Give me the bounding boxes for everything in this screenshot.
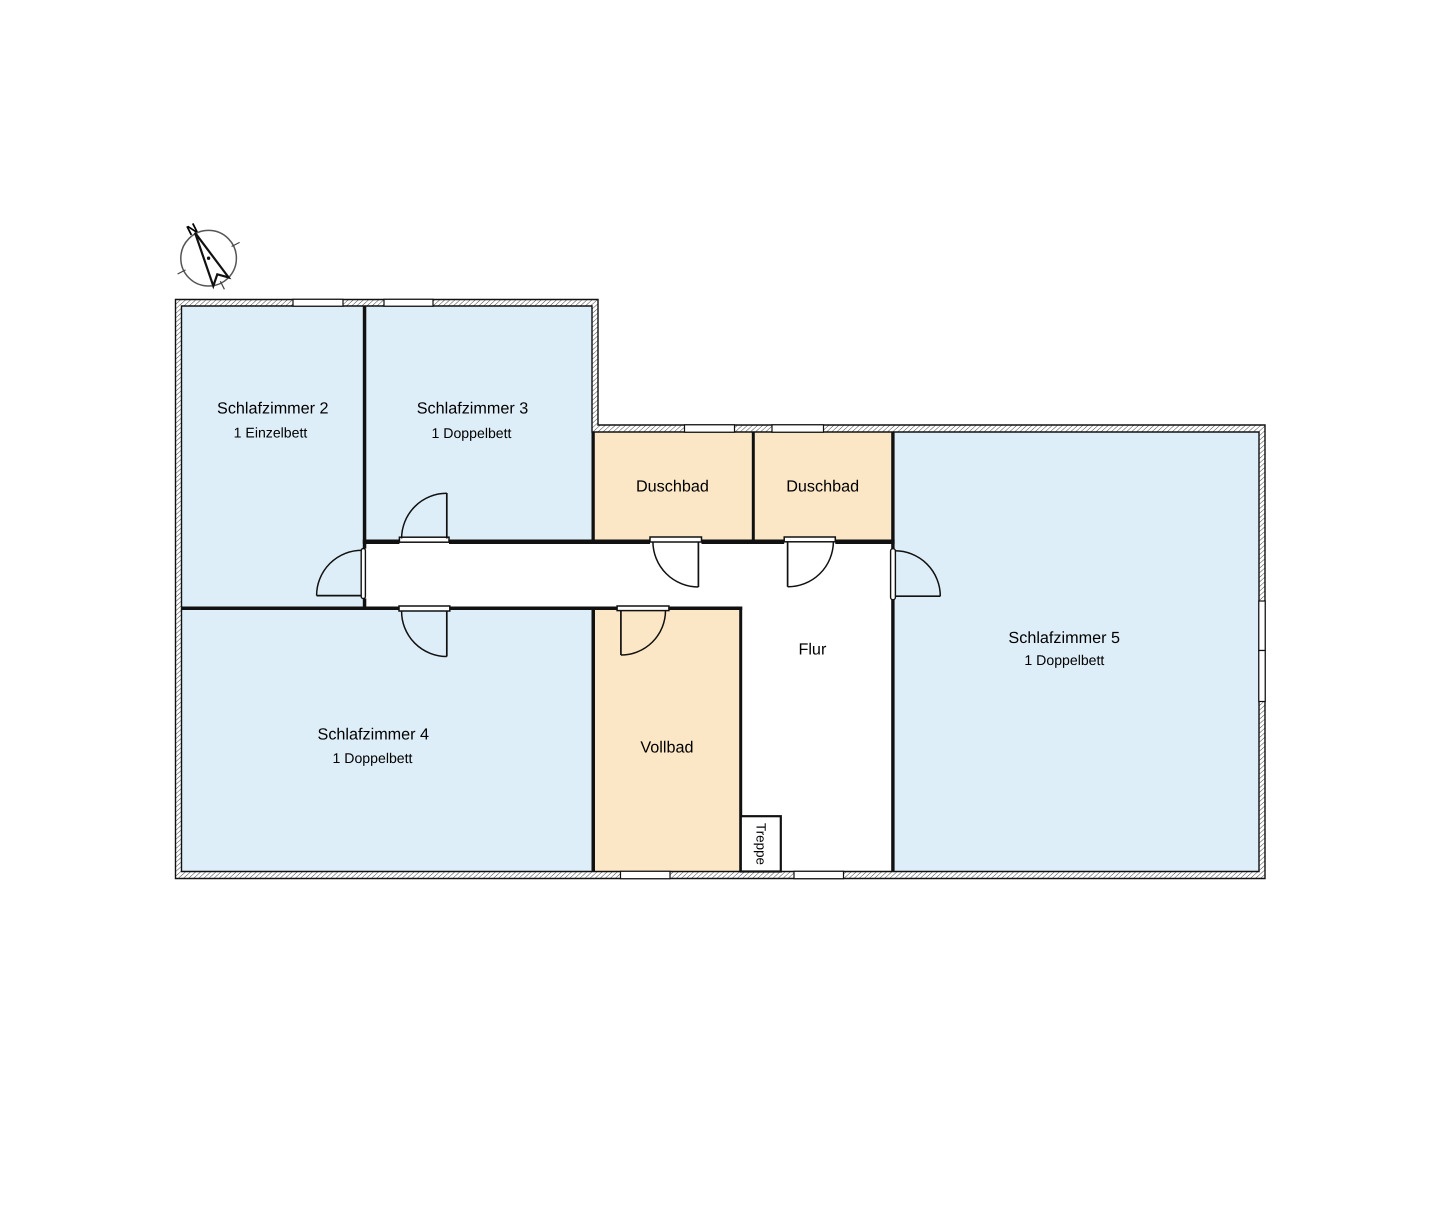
svg-text:Schlafzimmer 3: Schlafzimmer 3 — [417, 400, 529, 418]
svg-text:1 Doppelbett: 1 Doppelbett — [432, 425, 512, 441]
svg-text:Vollbad: Vollbad — [640, 739, 693, 757]
svg-text:1 Einzelbett: 1 Einzelbett — [234, 425, 308, 441]
svg-text:Schlafzimmer 5: Schlafzimmer 5 — [1008, 629, 1120, 647]
svg-text:Schlafzimmer 2: Schlafzimmer 2 — [217, 400, 329, 418]
svg-text:1 Doppelbett: 1 Doppelbett — [333, 750, 413, 766]
svg-text:Duschbad: Duschbad — [786, 478, 859, 496]
svg-text:Duschbad: Duschbad — [636, 478, 709, 496]
svg-text:Treppe: Treppe — [753, 823, 768, 865]
svg-text:Flur: Flur — [798, 641, 826, 659]
svg-text:Schlafzimmer 4: Schlafzimmer 4 — [318, 726, 430, 744]
svg-text:1 Doppelbett: 1 Doppelbett — [1024, 652, 1104, 668]
